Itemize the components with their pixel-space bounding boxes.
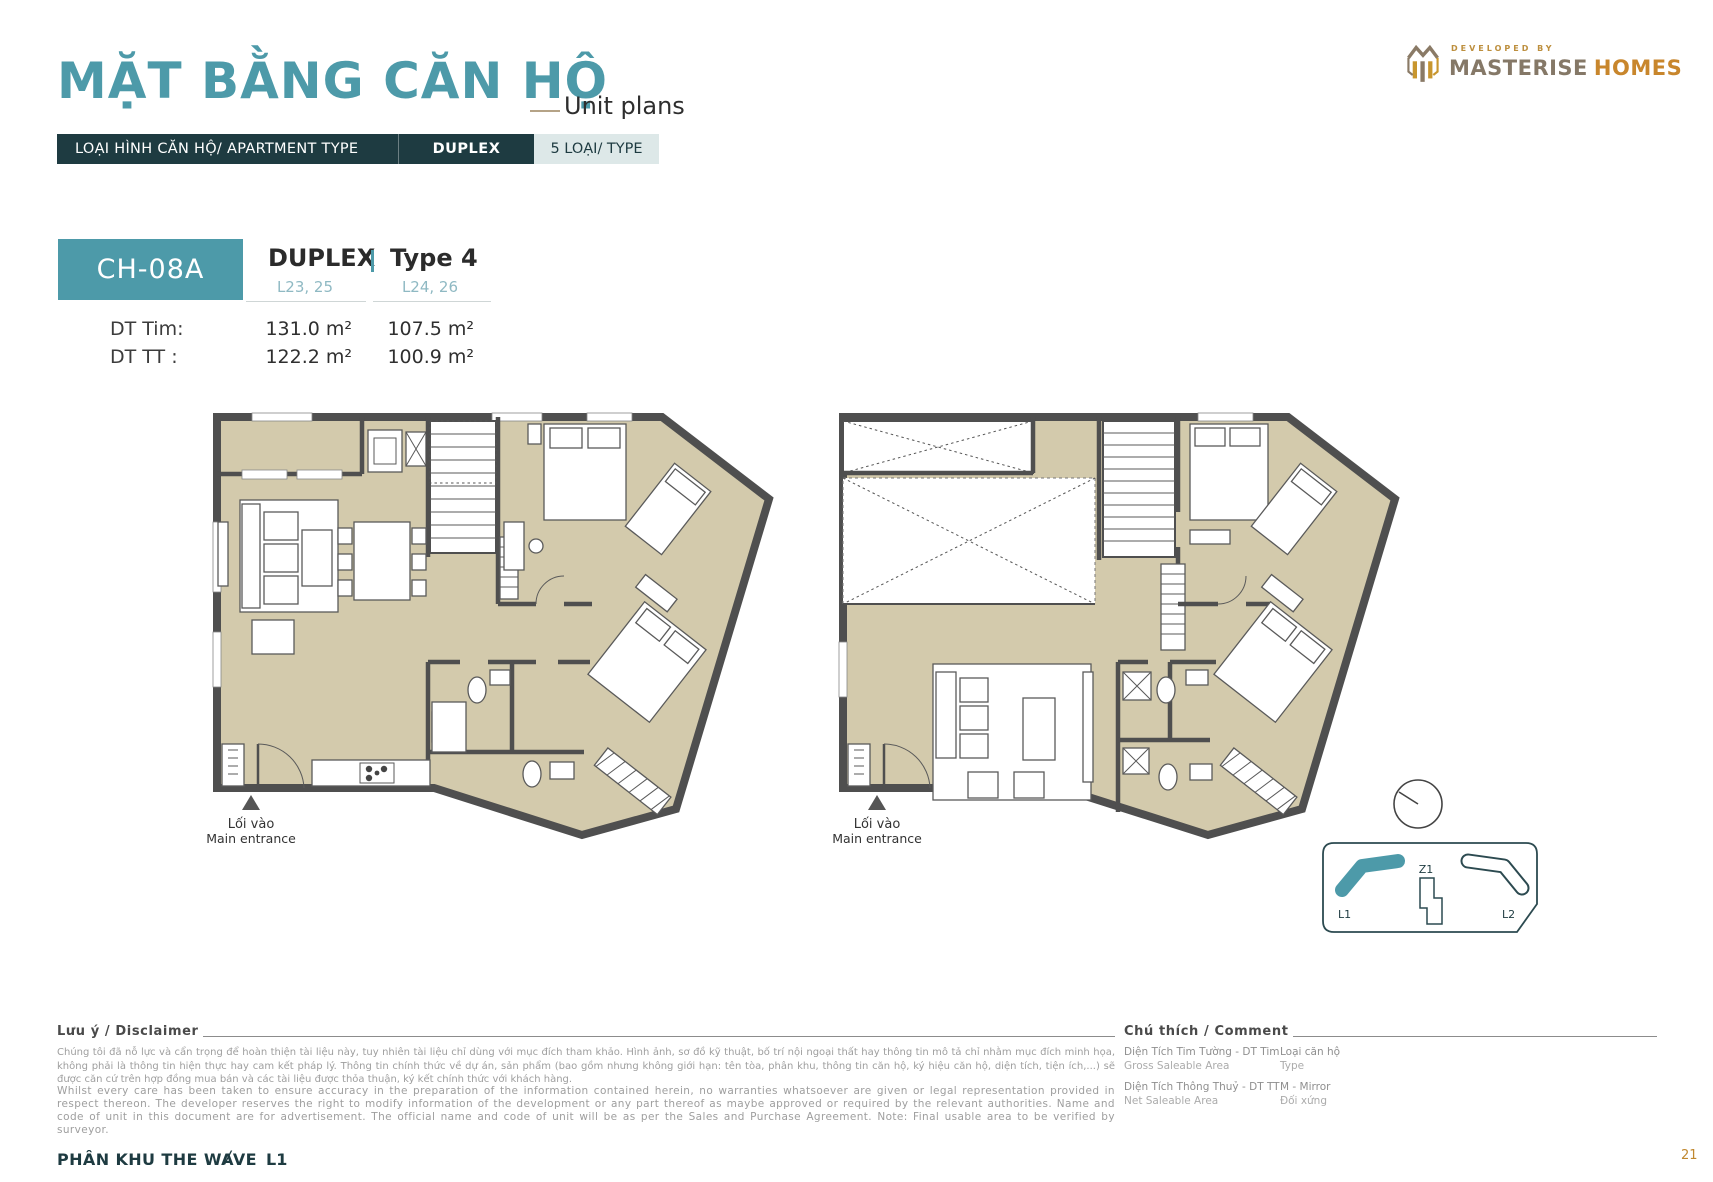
page-subtitle: Unit plans [564, 92, 685, 120]
legend-item-line2: Gross Saleable Area [1124, 1060, 1279, 1072]
logo-brand: MASTERISEHOMES [1449, 56, 1682, 80]
page-number: 21 [1681, 1148, 1698, 1163]
unit-levels-col2: L24, 26 [375, 278, 485, 296]
masterise-logo-icon [1405, 42, 1441, 84]
legend-item: Loại căn hộ Type [1280, 1046, 1340, 1072]
compass-icon [1390, 776, 1446, 832]
dining-table [338, 522, 426, 600]
main-entrance-marker: Lối vào Main entrance [206, 795, 296, 846]
legend-item-line2: Đối xứng [1280, 1095, 1330, 1107]
entrance-label-vi: Lối vào [854, 817, 901, 832]
disclaimer-heading: Lưu ý / Disclaimer [57, 1024, 199, 1039]
disclaimer-heading-row: Lưu ý / Disclaimer [57, 1024, 1115, 1039]
entrance-label-en: Main entrance [832, 831, 922, 846]
legend-item-line1: Diện Tích Tim Tường - DT Tim [1124, 1046, 1279, 1058]
unit-type-variant: Type 4 [390, 244, 478, 272]
disclaimer-rule [203, 1036, 1115, 1037]
subtitle-rule [530, 110, 560, 112]
legend-item: Diện Tích Thông Thuỷ - DT TT Net Saleabl… [1124, 1081, 1280, 1107]
legend-rule [1293, 1036, 1657, 1037]
unit-plan-page: MẶT BẰNG CĂN HỘ Unit plans DEVELOPED BY … [0, 0, 1713, 1182]
area-row-value2: 107.5 m² [362, 318, 474, 340]
unit-type-name: DUPLEX [268, 244, 375, 272]
family-room [933, 664, 1093, 800]
legend-item-line2: Type [1280, 1060, 1340, 1072]
legend-item-line1: M - Mirror [1280, 1081, 1330, 1093]
utility-closet [368, 430, 426, 472]
site-map-label-l1: L1 [1338, 908, 1351, 921]
logo-brand-main: MASTERISE [1449, 56, 1588, 80]
page-subtitle-wrap: Unit plans [530, 92, 685, 120]
logo-brand-accent: HOMES [1594, 56, 1682, 80]
page-title: MẶT BẰNG CĂN HỘ [57, 52, 608, 110]
logo-text: DEVELOPED BY MASTERISEHOMES [1449, 42, 1682, 80]
legend-item-line1: Loại căn hộ [1280, 1046, 1340, 1058]
area-row-label: DT TT : [110, 346, 178, 368]
legend-item: Diện Tích Tim Tường - DT Tim Gross Salea… [1124, 1046, 1279, 1072]
legend-item-line2: Net Saleable Area [1124, 1095, 1280, 1107]
entrance-label-en: Main entrance [206, 831, 296, 846]
area-row-value1: 122.2 m² [240, 346, 352, 368]
type-bar-count: 5 LOẠI/ TYPE [534, 134, 659, 164]
site-map-label-z1: Z1 [1419, 863, 1434, 876]
footer-separator: / [225, 1148, 231, 1168]
levels-underline-2 [373, 301, 491, 302]
levels-underline-1 [246, 301, 366, 302]
footer-level: L1 [266, 1150, 287, 1169]
developer-logo: DEVELOPED BY MASTERISEHOMES [1405, 42, 1682, 84]
area-row-label: DT Tim: [110, 318, 184, 340]
entrance-arrow-icon [868, 795, 886, 810]
legend-item-line1: Diện Tích Thông Thuỷ - DT TT [1124, 1081, 1280, 1093]
entrance-label-vi: Lối vào [228, 817, 275, 832]
unit-levels-col1: L23, 25 [250, 278, 360, 296]
main-entrance-marker: Lối vào Main entrance [832, 795, 922, 846]
legend-heading: Chú thích / Comment [1124, 1024, 1289, 1039]
site-map: Z1 L1 L2 [1322, 842, 1544, 938]
floor-plan-upper-level: Lối vào Main entrance [818, 372, 1413, 847]
logo-developed-by: DEVELOPED BY [1451, 44, 1682, 53]
legend-heading-row: Chú thích / Comment [1124, 1024, 1657, 1039]
disclaimer-text-vi: Chúng tôi đã nỗ lực và cẩn trọng để hoàn… [57, 1046, 1115, 1087]
floor-plan-lower-level: Lối vào Main entrance [192, 372, 787, 847]
unit-code-badge: CH-08A [58, 239, 243, 300]
void-over-balcony [843, 417, 1033, 473]
legend-item: M - Mirror Đối xứng [1280, 1081, 1330, 1107]
type-bar-label: LOẠI HÌNH CĂN HỘ/ APARTMENT TYPE [57, 134, 398, 164]
apartment-type-bar: LOẠI HÌNH CĂN HỘ/ APARTMENT TYPE DUPLEX … [57, 134, 659, 164]
area-row-value1: 131.0 m² [240, 318, 352, 340]
type-bar-value: DUPLEX [398, 134, 534, 164]
void-double-height [843, 478, 1095, 604]
area-row-value2: 100.9 m² [362, 346, 474, 368]
unit-type-divider [371, 250, 374, 272]
disclaimer-text-en: Whilst every care has been taken to ensu… [57, 1085, 1115, 1137]
site-map-label-l2: L2 [1502, 908, 1515, 921]
entrance-arrow-icon [242, 795, 260, 810]
